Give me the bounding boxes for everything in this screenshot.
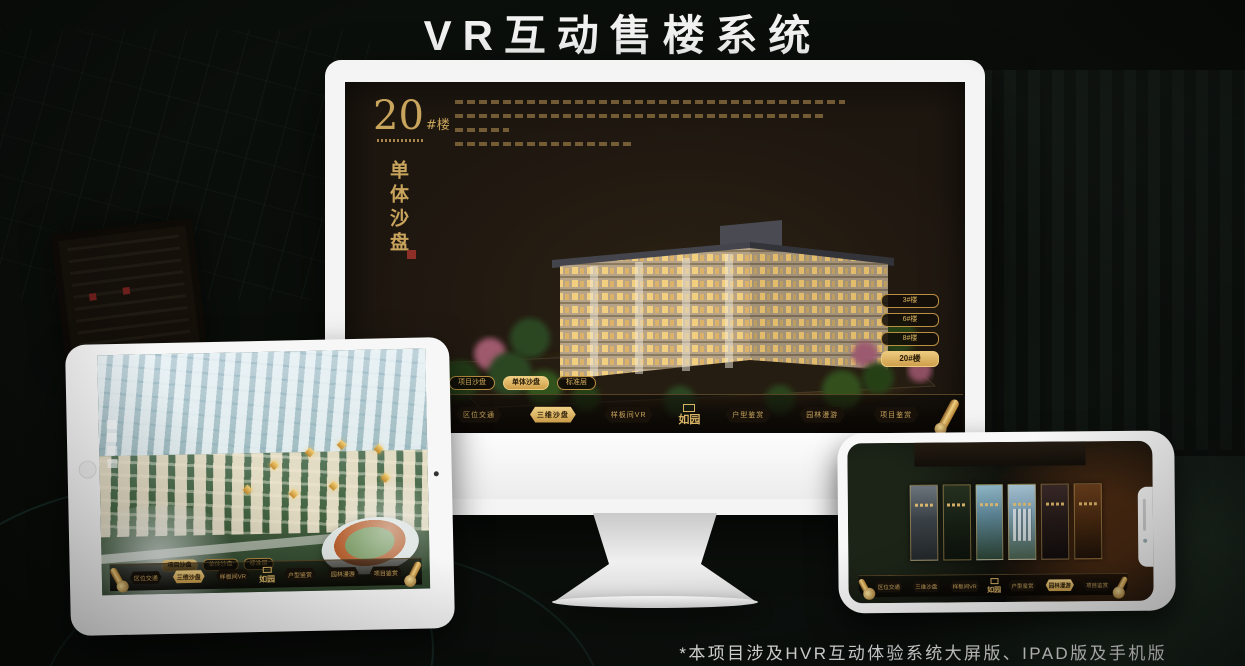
phone-nav-bar: 区位交通 三维沙盘 样板间VR 如园 户型鉴赏 园林漫游 项目鉴赏: [858, 573, 1127, 597]
logo-mark-icon: [262, 567, 271, 573]
floor-button-group: 3#楼 6#楼 8#楼 20#楼: [881, 294, 939, 372]
gallery-card[interactable]: [975, 484, 1003, 560]
ruyuan-logo: 如园: [987, 578, 1001, 593]
gallery-card[interactable]: [1008, 484, 1036, 560]
nav-item-model-room-vr[interactable]: 样板间VR: [948, 580, 982, 592]
block-subtitle-line: [377, 139, 423, 142]
ruyuan-logo: 如园: [259, 567, 275, 583]
logo-mark-icon: [683, 404, 695, 412]
speaker-slit-icon: [1143, 499, 1146, 531]
nav-item-3d-sandbox[interactable]: 三维沙盘: [527, 407, 579, 423]
nav-item-model-room-vr[interactable]: 样板间VR: [214, 569, 253, 583]
scroll-menu-icon[interactable]: [1115, 575, 1129, 594]
scroll-menu-icon[interactable]: [937, 397, 961, 431]
block-badge: 20#楼: [373, 96, 450, 148]
ruyuan-logo: 如园: [678, 404, 700, 425]
floor-button-8[interactable]: 8#楼: [881, 332, 939, 346]
phone-device: 区位交通 三维沙盘 样板间VR 如园 户型鉴赏 园林漫游 项目鉴赏: [837, 431, 1176, 614]
gallery-card[interactable]: [1041, 483, 1069, 559]
mode-tab-group: 项目沙盘 单体沙盘 标准层: [449, 376, 596, 390]
tablet-camera-icon: [434, 471, 439, 476]
tablet-screen: 项目沙盘 单体沙盘 标准层 区位交通 三维沙盘 样板间VR 如园 户型鉴赏 园林…: [97, 349, 430, 596]
tablet-device: 项目沙盘 单体沙盘 标准层 区位交通 三维沙盘 样板间VR 如园 户型鉴赏 园林…: [65, 337, 455, 636]
nav-item-location-traffic[interactable]: 区位交通: [453, 407, 505, 423]
page-title: VR互动售楼系统: [0, 2, 1245, 63]
nav-item-garden-roam[interactable]: 园林漫游: [796, 407, 848, 423]
background-city-silhouette: [980, 70, 1245, 450]
nav-item-model-room-vr[interactable]: 样板间VR: [601, 407, 657, 423]
plaque-seal-icon: [89, 293, 97, 301]
nav-item-project-gallery[interactable]: 项目鉴赏: [870, 407, 922, 423]
nav-item-3d-sandbox[interactable]: 三维沙盘: [171, 570, 207, 584]
nav-item-location-traffic[interactable]: 区位交通: [128, 571, 164, 585]
gallery-card[interactable]: [1074, 483, 1102, 559]
phone-notch: [1138, 487, 1154, 567]
block-suffix: #楼: [426, 118, 450, 133]
plaque-seal-icon: [122, 287, 130, 295]
logo-mark-icon: [990, 578, 998, 584]
tab-single-sandbox[interactable]: 单体沙盘: [503, 376, 549, 390]
scroll-menu-icon[interactable]: [406, 560, 422, 583]
promo-canvas: VR互动售楼系统 20#楼 单体沙盘: [0, 0, 1245, 666]
scroll-menu-icon[interactable]: [858, 577, 872, 596]
nav-item-unit-gallery[interactable]: 户型鉴赏: [1006, 579, 1038, 591]
interior-beam: [914, 441, 1085, 466]
monitor-base: [552, 596, 758, 608]
footnote-text: *本项目涉及HVR互动体验系统大屏版、IPAD版及手机版: [679, 639, 1167, 664]
front-camera-icon: [1143, 539, 1147, 543]
scroll-menu-icon[interactable]: [109, 567, 126, 590]
vertical-title: 单体沙盘: [385, 160, 412, 256]
nav-item-garden-roam[interactable]: 园林漫游: [325, 566, 361, 580]
monitor-stand: [555, 513, 755, 601]
gallery-card-row: [910, 483, 1103, 561]
nav-item-unit-gallery[interactable]: 户型鉴赏: [282, 567, 318, 581]
tablet-home-button: [78, 460, 96, 478]
floor-button-3[interactable]: 3#楼: [881, 294, 939, 308]
phone-screen: 区位交通 三维沙盘 样板间VR 如园 户型鉴赏 园林漫游 项目鉴赏: [847, 441, 1153, 604]
nav-item-garden-roam[interactable]: 园林漫游: [1044, 579, 1076, 591]
nav-item-unit-gallery[interactable]: 户型鉴赏: [722, 407, 774, 423]
nav-item-project-gallery[interactable]: 项目鉴赏: [368, 566, 404, 580]
monitor-nav-bar: 区位交通 三维沙盘 样板间VR 如园 户型鉴赏 园林漫游 项目鉴赏: [447, 394, 963, 433]
floor-button-20[interactable]: 20#楼: [881, 351, 939, 367]
nav-item-project-gallery[interactable]: 项目鉴赏: [1081, 579, 1113, 591]
tab-standard-floor[interactable]: 标准层: [557, 376, 596, 390]
gallery-card[interactable]: [942, 484, 970, 560]
tab-project-sandbox[interactable]: 项目沙盘: [449, 376, 495, 390]
block-number: 20: [373, 93, 424, 139]
district-label: [107, 420, 118, 472]
nav-item-location-traffic[interactable]: 区位交通: [873, 580, 905, 592]
nav-item-3d-sandbox[interactable]: 三维沙盘: [910, 580, 942, 592]
seal-stamp-icon: [407, 250, 416, 259]
gallery-card[interactable]: [910, 485, 938, 561]
floor-button-6[interactable]: 6#楼: [881, 313, 939, 327]
